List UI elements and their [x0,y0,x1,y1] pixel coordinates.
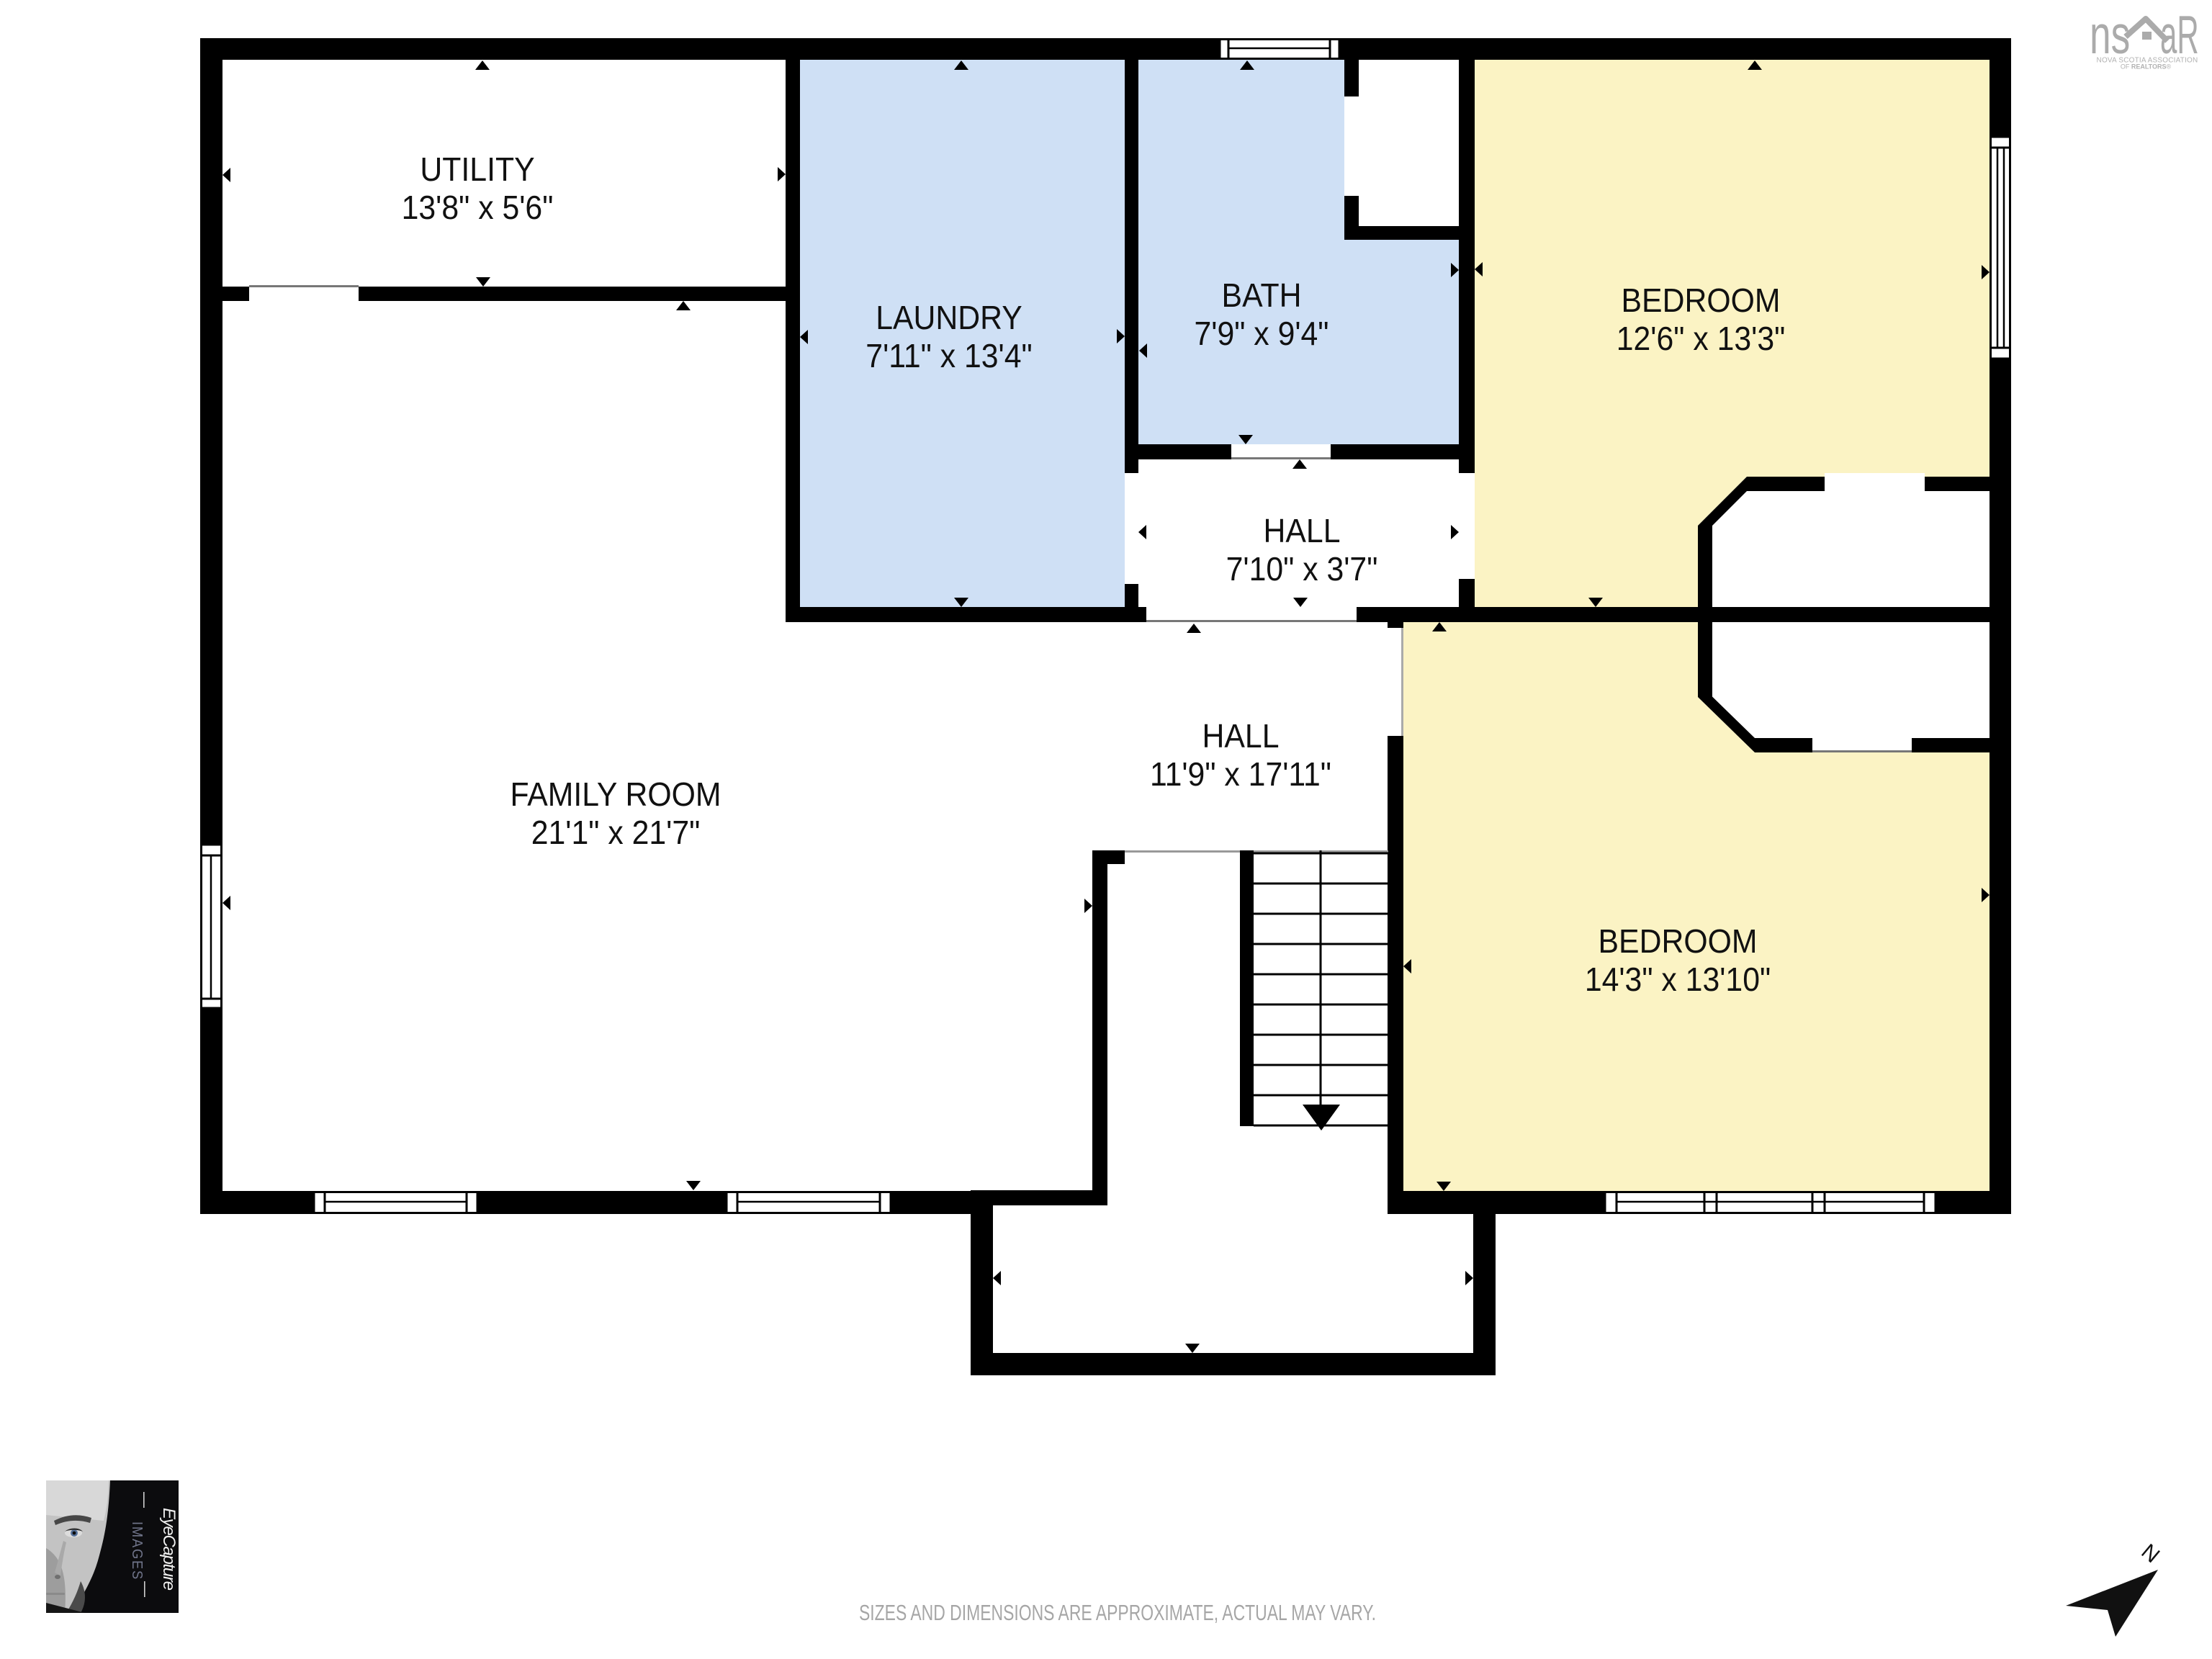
svg-text:SIZES AND DIMENSIONS ARE APPRO: SIZES AND DIMENSIONS ARE APPROXIMATE, AC… [859,1600,1376,1625]
svg-text:BEDROOM: BEDROOM [1599,924,1758,961]
svg-text:7'9" x 9'4": 7'9" x 9'4" [1195,316,1329,353]
svg-text:aR: aR [2160,4,2199,65]
svg-text:FAMILY ROOM: FAMILY ROOM [510,777,721,814]
svg-text:HALL: HALL [1264,513,1341,550]
svg-text:11'9" x 17'11": 11'9" x 17'11" [1150,757,1331,793]
svg-text:BEDROOM: BEDROOM [1622,283,1781,320]
svg-text:13'8" x 5'6": 13'8" x 5'6" [402,190,554,227]
svg-text:12'6" x 13'3": 12'6" x 13'3" [1617,321,1786,358]
svg-text:LAUNDRY: LAUNDRY [876,300,1022,337]
svg-text:7'11" x 13'4": 7'11" x 13'4" [866,338,1032,375]
svg-text:14'3" x 13'10": 14'3" x 13'10" [1585,962,1771,999]
svg-text:UTILITY: UTILITY [420,152,534,189]
svg-text:7'10" x 3'7": 7'10" x 3'7" [1226,552,1378,588]
svg-text:IMAGES: IMAGES [129,1521,145,1581]
svg-text:HALL: HALL [1202,719,1280,755]
svg-text:BATH: BATH [1222,278,1302,315]
svg-text:EyeCapture: EyeCapture [159,1508,179,1591]
svg-text:21'1" x 21'7": 21'1" x 21'7" [531,815,701,852]
svg-text:OF REALTORS®: OF REALTORS® [2121,63,2172,71]
